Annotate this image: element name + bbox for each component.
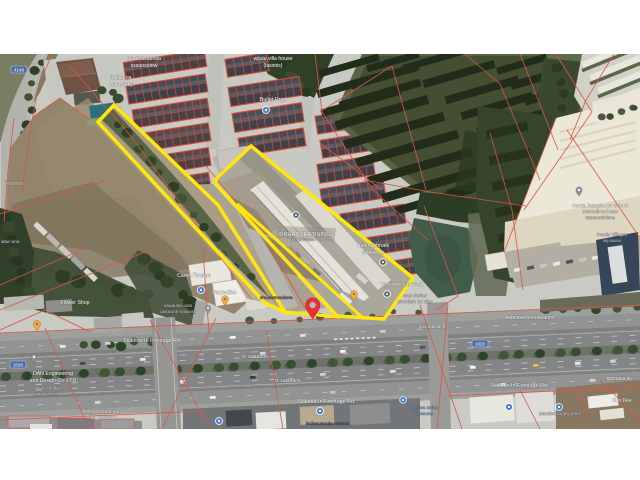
svg-text:asaonasaunaa: asaonasaunaa	[127, 56, 161, 62]
svg-text:lsoisauauuia uiuiena: lsoisauauuia uiuiena	[306, 421, 350, 427]
svg-text:Panda Villages: Panda Villages	[597, 232, 628, 237]
svg-text:uasauns-ooiiwou: uasauns-ooiiwou	[160, 309, 196, 315]
svg-text:uasauns: uasauns	[415, 412, 434, 417]
svg-text:Ratchaphruek: Ratchaphruek	[357, 243, 390, 249]
svg-text:wanaosuiuiena: wanaosuiuiena	[585, 215, 615, 220]
svg-text:o. uasauns: o. uasauns	[275, 378, 301, 384]
svg-text:amsiea aniou: amsiea aniou	[410, 405, 439, 411]
svg-text:oana auny: oana auny	[109, 82, 134, 88]
svg-text:iauina oa: iauina oa	[110, 75, 131, 81]
svg-text:Bullet Print: Bullet Print	[260, 97, 287, 103]
svg-text:DAN Engineering: DAN Engineering	[33, 371, 73, 377]
svg-text:ouu uasauns: ouu uasauns	[419, 324, 446, 329]
svg-text:1020: 1020	[475, 341, 486, 346]
svg-text:1020: 1020	[13, 362, 24, 367]
svg-text:(aiunoiulweu): (aiunoiulweu)	[33, 391, 60, 396]
svg-text:Verycoffee: Verycoffee	[212, 290, 237, 296]
svg-text:International Inter: International Inter	[582, 209, 618, 214]
svg-text:Flower Shop: Flower Shop	[60, 300, 89, 306]
svg-text:ieosnoo: ieosnoo	[5, 181, 23, 187]
svg-text:niozuuiu o: niozuuiu o	[607, 376, 630, 382]
svg-text:premium by xinn: premium by xinn	[397, 299, 433, 305]
svg-text:iaaw oina: iaaw oina	[1, 239, 20, 244]
svg-text:and Design Co.,LTD: and Design Co.,LTD	[30, 378, 77, 384]
svg-text:niozuuiu ouuuasauns: niozuuiu ouuuasauns	[505, 315, 554, 321]
svg-text:ueiolnwuen: ueiolnwuen	[290, 237, 314, 242]
svg-text:usun aiu iaudiua: usun aiu iaudiua	[30, 385, 63, 390]
svg-text:shuaiwnsuiewa: shuaiwnsuiewa	[260, 295, 293, 301]
svg-text:Nakhon In Frontage Rd: Nakhon In Frontage Rd	[298, 399, 354, 405]
svg-text:iaa w aaaua: iaa w aaaua	[90, 415, 117, 421]
svg-text:Yes it me car wash: Yes it me car wash	[380, 282, 423, 288]
svg-text:sssunsoinw: sssunsoinw	[131, 63, 158, 69]
svg-text:Nakhon In Frontage Rd: Nakhon In Frontage Rd	[124, 338, 180, 344]
svg-text:4148: 4148	[14, 67, 25, 72]
svg-text:wijuiuuiui: wijuiuuiui	[603, 238, 621, 243]
svg-text:wau durian: wau durian	[403, 293, 427, 299]
svg-text:o. uasauns: o. uasauns	[242, 354, 268, 360]
svg-text:Nakhon In Frontage Rd: Nakhon In Frontage Rd	[491, 383, 547, 389]
svg-text:Mansion supply Store: Mansion supply Store	[539, 411, 582, 416]
svg-text:wijuiu villa house: wijuiu villa house	[254, 56, 293, 62]
svg-text:Sun Dee: Sun Dee	[612, 398, 632, 404]
svg-text:iiauauiso aos: iiauauiso aos	[164, 303, 193, 309]
svg-text:workshop: workshop	[362, 250, 384, 256]
svg-text:Carrie Flowers: Carrie Flowers	[177, 273, 211, 279]
svg-text:(lasonis): (lasonis)	[264, 63, 283, 69]
